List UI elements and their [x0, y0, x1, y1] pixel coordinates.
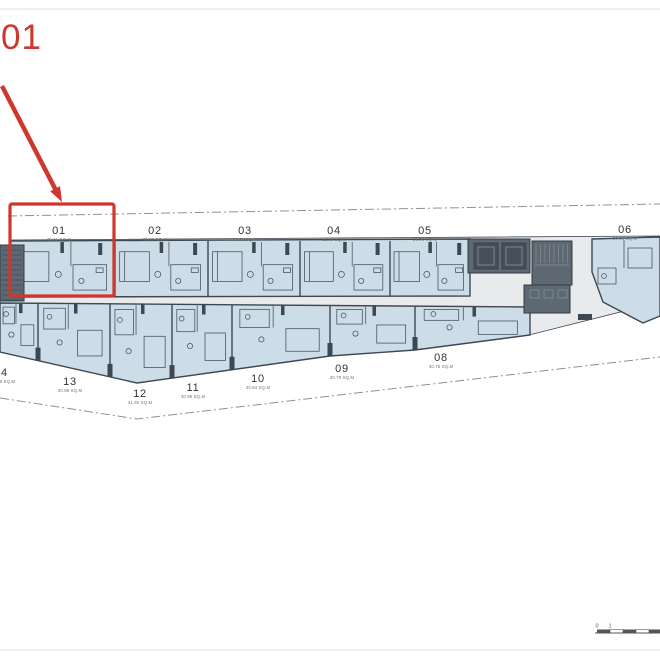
annotation-arrow-line [2, 86, 57, 193]
unit-area-label: 30.78 SQ.M [330, 375, 355, 380]
unit-area-label: 30.78 SQ.M [429, 364, 454, 369]
entry-door-mark [160, 242, 164, 253]
corridor-door-mark [578, 314, 592, 320]
closet-mark [285, 243, 289, 255]
unit-area-label: 31.38 SQ.M [413, 237, 438, 242]
unit-number-label: 11 [186, 382, 199, 394]
closet-mark [376, 243, 380, 255]
unit-band-top [10, 239, 470, 297]
unit-area-label: 31.90 SQ.M [128, 400, 153, 405]
unit-number-label: 02 [148, 225, 162, 237]
wall-pier [170, 365, 175, 378]
unit-area-label: 30.98 SQ.M [181, 394, 206, 399]
annotation-arrow-head [50, 186, 62, 202]
entry-door-mark [373, 306, 377, 316]
unit-number-label: 14 [0, 367, 8, 379]
unit-area-label: 31.38 SQ.M [143, 237, 168, 242]
wall-pier [328, 343, 333, 356]
unit-number-label: 13 [63, 376, 77, 388]
wall-pier [108, 364, 113, 377]
entry-door-mark [281, 305, 285, 315]
entry-door-mark [19, 303, 23, 313]
boundary-line-top [8, 204, 660, 216]
selected-unit-callout: 01 [1, 20, 42, 55]
stairwell-core [532, 241, 572, 285]
wall-pier [36, 348, 41, 361]
service-room [524, 285, 570, 313]
scale-bar-segment [623, 630, 636, 634]
unit-area-label: 30.98 SQ.M [0, 379, 15, 384]
unit-band-bottom [0, 303, 530, 383]
unit-number-label: 05 [418, 225, 432, 237]
entry-door-mark [141, 304, 145, 314]
floor-plan-drawing: 0139.61 SQ.M0231.38 SQ.M0331.61 SQ.M0431… [0, 0, 660, 660]
unit-number-label: 09 [335, 363, 349, 375]
unit-number-label: 06 [618, 224, 632, 236]
wall-pier [413, 337, 418, 350]
entry-door-mark [252, 242, 256, 253]
closet-mark [193, 243, 197, 255]
scale-bar-segment [636, 630, 649, 634]
entry-door-mark [60, 242, 64, 253]
unit-area-label: 30.01 SQ.M [613, 236, 638, 241]
unit-number-label: 01 [52, 225, 66, 237]
entry-door-mark [202, 305, 206, 315]
scale-bar-segment [610, 630, 623, 634]
unit-area-label: 39.61 SQ.M [47, 237, 72, 242]
unit-area-label: 30.98 SQ.M [58, 388, 83, 393]
scale-bar-tick-label: 1 [608, 624, 611, 630]
unit-number-label: 12 [133, 388, 147, 400]
wall-pier [230, 357, 235, 370]
unit-area-label: 31.38 SQ.M [322, 237, 347, 242]
unit-number-label: 03 [238, 225, 252, 237]
unit-number-label: 04 [327, 225, 341, 237]
stairwell-left [0, 245, 24, 301]
entry-door-mark [473, 307, 477, 317]
unit-number-label: 10 [251, 373, 265, 385]
scale-bar: 015 [595, 624, 660, 634]
entry-door-mark [343, 242, 347, 253]
unit-area-label: 31.61 SQ.M [233, 237, 258, 242]
unit-area-label: 30.84 SQ.M [246, 385, 271, 390]
unit-number-label: 08 [434, 352, 448, 364]
closet-mark [457, 243, 461, 255]
scale-bar-tick-label: 0 [595, 624, 598, 630]
closet-mark [98, 243, 102, 255]
entry-door-mark [74, 304, 78, 314]
entry-door-mark [428, 242, 432, 253]
scale-bar-segment [649, 630, 660, 634]
scale-bar-segment [597, 630, 610, 634]
